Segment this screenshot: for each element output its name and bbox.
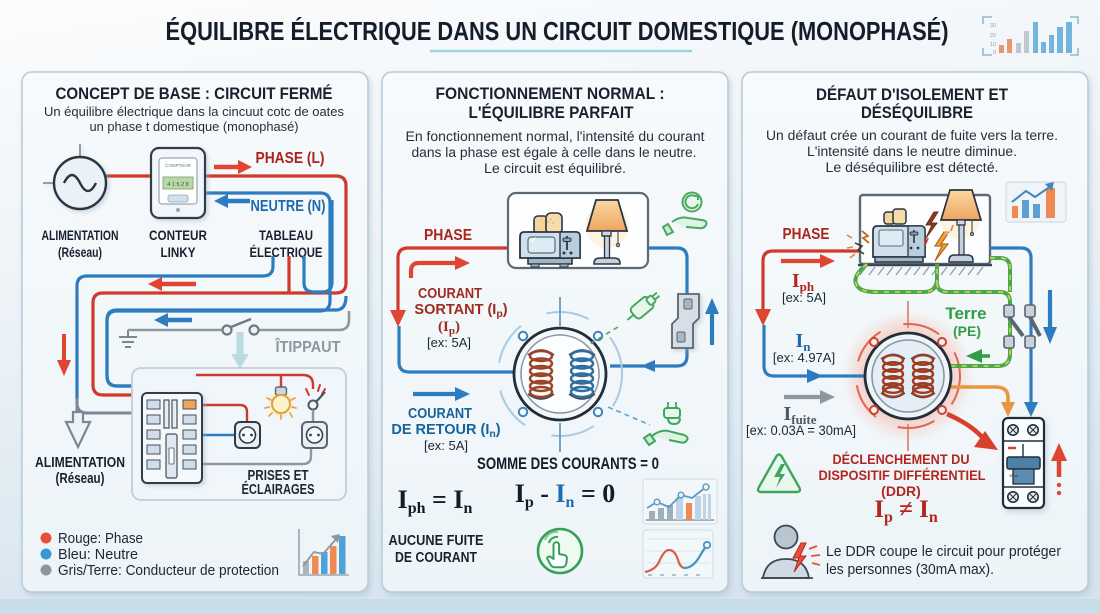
svg-text:[ex: 4.97A]: [ex: 4.97A] bbox=[773, 350, 835, 365]
svg-text:TABLEAU: TABLEAU bbox=[259, 228, 313, 243]
svg-text:ALIMENTATION: ALIMENTATION bbox=[42, 228, 119, 243]
svg-text:Un défaut crée un courant de f: Un défaut crée un courant de fuite vers … bbox=[766, 128, 1058, 143]
svg-text:En fonctionnement normal, l'in: En fonctionnement normal, l'intensité du… bbox=[406, 129, 705, 144]
svg-text:DISPOSITIF DIFFÉRENTIEL: DISPOSITIF DIFFÉRENTIEL bbox=[819, 467, 986, 483]
svg-text:Gris/Terre: Conducteur de prot: Gris/Terre: Conducteur de protection bbox=[58, 563, 279, 579]
svg-text:Le circuit est équilibré.: Le circuit est équilibré. bbox=[484, 161, 626, 176]
svg-text:[ex: 5A]: [ex: 5A] bbox=[427, 335, 471, 350]
svg-text:COMPTEUR: COMPTEUR bbox=[165, 163, 192, 168]
svg-text:(PE): (PE) bbox=[953, 323, 981, 339]
svg-text:Le DDR coupe le circuit pour p: Le DDR coupe le circuit pour protéger bbox=[826, 544, 1061, 560]
svg-text:un phase t domestique (monopha: un phase t domestique (monophasé) bbox=[90, 119, 299, 134]
svg-text:Ip ≠ In: Ip ≠ In bbox=[874, 496, 938, 526]
svg-text:PHASE: PHASE bbox=[783, 226, 830, 243]
svg-text:NEUTRE (N): NEUTRE (N) bbox=[251, 198, 326, 215]
svg-text:0: 0 bbox=[993, 50, 996, 56]
svg-text:30mA: 30mA bbox=[1009, 474, 1019, 478]
svg-text:L'intensité dans le neutre dim: L'intensité dans le neutre diminue. bbox=[807, 144, 1017, 159]
svg-text:AUCUNE FUITE: AUCUNE FUITE bbox=[389, 533, 484, 549]
svg-text:Terre: Terre bbox=[945, 304, 986, 323]
svg-text:CONCEPT DE BASE : CIRCUIT FERM: CONCEPT DE BASE : CIRCUIT FERMÉ bbox=[56, 84, 333, 103]
svg-text:DÉSÉQUILIBRE: DÉSÉQUILIBRE bbox=[861, 103, 973, 122]
svg-text:les personnes (30mA max).: les personnes (30mA max). bbox=[826, 562, 994, 578]
svg-text:DE COURANT: DE COURANT bbox=[395, 550, 477, 566]
svg-text:dans la phase est égale à cell: dans la phase est égale à celle dans le … bbox=[412, 145, 697, 160]
svg-text:Un équilibre électrique dans l: Un équilibre électrique dans la cincuut … bbox=[44, 104, 344, 119]
svg-text:L'ÉQUILIBRE PARFAIT: L'ÉQUILIBRE PARFAIT bbox=[469, 103, 634, 122]
svg-text:(Réseau): (Réseau) bbox=[56, 471, 105, 487]
svg-text:ÉQUILIBRE ÉLECTRIQUE DANS UN C: ÉQUILIBRE ÉLECTRIQUE DANS UN CIRCUIT DOM… bbox=[166, 16, 949, 46]
svg-text:PHASE (L): PHASE (L) bbox=[256, 150, 325, 167]
svg-text:ÉCLAIRAGES: ÉCLAIRAGES bbox=[242, 481, 315, 498]
svg-text:ÉLECTRIQUE: ÉLECTRIQUE bbox=[250, 245, 323, 260]
svg-text:20: 20 bbox=[990, 33, 996, 39]
svg-text:Bleu: Neutre: Bleu: Neutre bbox=[58, 547, 138, 563]
svg-text:Le déséquilibre est détecté.: Le déséquilibre est détecté. bbox=[826, 160, 999, 175]
svg-text:SORTANT (Ip): SORTANT (Ip) bbox=[414, 302, 507, 320]
svg-text:ALIMENTATION: ALIMENTATION bbox=[35, 455, 125, 471]
svg-text:PHASE: PHASE bbox=[424, 227, 472, 244]
svg-text:[ex: 0.03A = 30mA]: [ex: 0.03A = 30mA] bbox=[746, 423, 856, 438]
svg-text:CONTEUR: CONTEUR bbox=[149, 228, 207, 243]
svg-text:LINKY: LINKY bbox=[161, 245, 196, 260]
svg-text:Rouge: Phase: Rouge: Phase bbox=[58, 531, 143, 547]
svg-text:DÉFAUT D'ISOLEMENT ET: DÉFAUT D'ISOLEMENT ET bbox=[816, 85, 1008, 104]
svg-text:30: 30 bbox=[990, 23, 996, 29]
svg-text:COURANT: COURANT bbox=[418, 286, 482, 302]
svg-text:ÎTIPPAUT: ÎTIPPAUT bbox=[275, 337, 341, 356]
svg-text:SOMME DES COURANTS = 0: SOMME DES COURANTS = 0 bbox=[477, 455, 659, 473]
svg-text:FONCTIONNEMENT NORMAL :: FONCTIONNEMENT NORMAL : bbox=[436, 85, 665, 103]
svg-text:[ex: 5A]: [ex: 5A] bbox=[782, 290, 826, 305]
svg-text:4 1 5 2 8: 4 1 5 2 8 bbox=[167, 182, 188, 188]
svg-text:(Réseau): (Réseau) bbox=[58, 245, 102, 260]
svg-text:COURANT: COURANT bbox=[408, 406, 472, 422]
svg-text:DÉCLENCHEMENT DU: DÉCLENCHEMENT DU bbox=[833, 451, 970, 467]
svg-text:[ex: 5A]: [ex: 5A] bbox=[424, 438, 468, 453]
svg-text:10: 10 bbox=[990, 42, 996, 48]
